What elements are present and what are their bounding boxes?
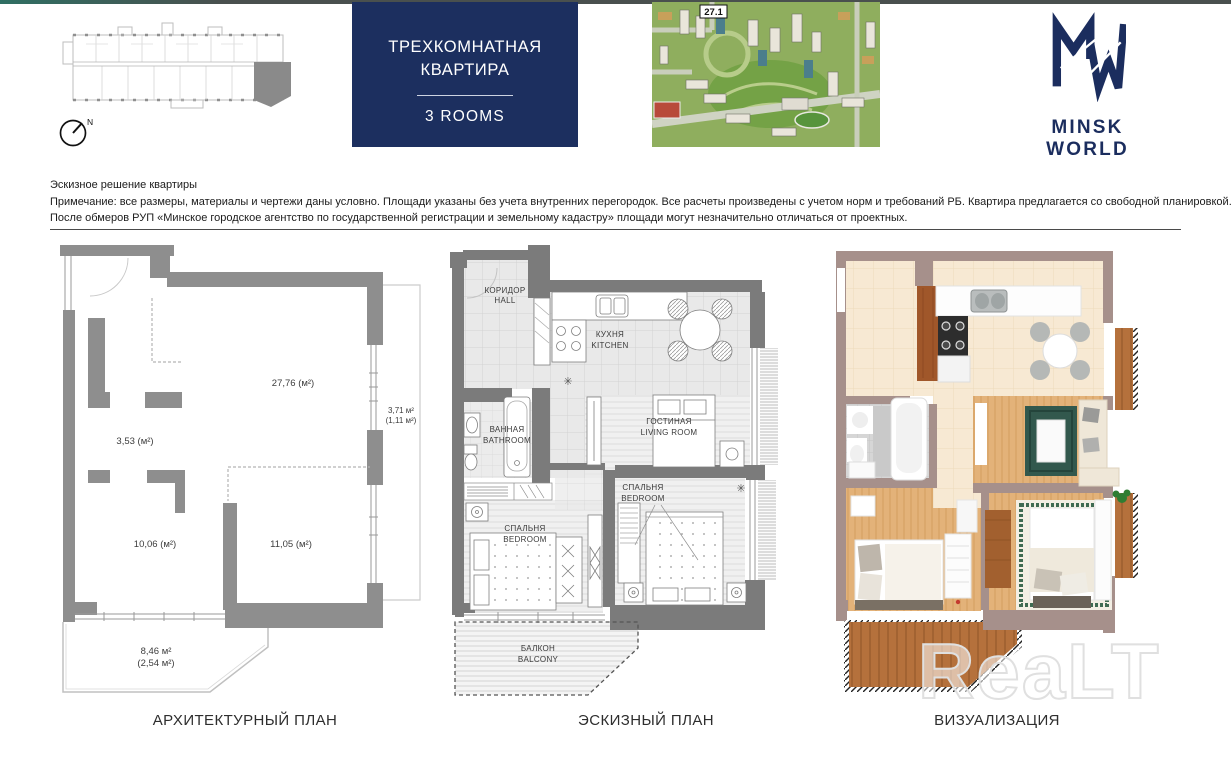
svg-text:KITCHEN: KITCHEN [591,341,628,350]
brand-logo: MINSK WORLD [1010,10,1165,161]
svg-text:BALCONY: BALCONY [518,655,559,664]
brand-name: MINSK WORLD [1010,117,1165,161]
flyer-page: N ТРЕХКОМНАТНАЯ КВАРТИРА 3 ROOMS [0,0,1231,763]
title-card: ТРЕХКОМНАТНАЯ КВАРТИРА 3 ROOMS [352,2,578,147]
area-bedroom-left: 10,06 (м²) [134,539,176,550]
svg-text:BEDROOM: BEDROOM [503,535,546,544]
aerial-photo: 27.1 [652,2,880,147]
svg-text:HALL: HALL [494,296,515,305]
caption-visualization: ВИЗУАЛИЗАЦИЯ [934,712,1060,729]
plant-icon: ✳ [736,483,745,495]
svg-text:ВАННАЯ: ВАННАЯ [490,425,525,434]
top-strip [0,0,1231,4]
svg-text:БАЛКОН: БАЛКОН [521,644,555,653]
compass-north-label: N [87,117,93,127]
viz-loggia-strips [1115,328,1138,578]
unit-type-ru: ТРЕХКОМНАТНАЯ [352,36,578,59]
loggia-outline [383,285,420,600]
disclaimer-block: Эскизное решение квартиры Примечание: вс… [50,177,1230,227]
caption-architectural: АРХИТЕКТУРНЫЙ ПЛАН [153,712,337,729]
unit-type-en: 3 ROOMS [352,108,578,126]
viz-bathroom [847,398,927,480]
compass-icon: N [56,112,100,152]
balcony-outline [63,622,268,692]
sketch-plan: ✳ [448,245,783,700]
title-divider [417,95,513,96]
area-bedroom-right: 11,05 (м²) [270,539,312,550]
fridge-snowflake-icon: ✳ [563,376,572,388]
svg-text:BEDROOM: BEDROOM [621,494,664,503]
visualization-plan [833,248,1163,698]
svg-text:BATHROOM: BATHROOM [483,436,531,445]
disclaimer-line-1: Эскизное решение квартиры [50,177,1230,194]
svg-text:(2,54 м²): (2,54 м²) [137,658,174,669]
wardrobe-strip [464,483,552,500]
door-arc [90,258,128,296]
block-number-badge: 27.1 [700,5,727,18]
disclaimer-line-3: После обмеров РУП «Минское городское аге… [50,210,1230,227]
disclaimer-line-2: Примечание: все размеры, материалы и чер… [50,194,1230,211]
svg-text:LIVING ROOM: LIVING ROOM [641,428,698,437]
building-key-plan [58,10,333,110]
svg-text:27.1: 27.1 [704,7,723,18]
svg-text:(1,11 м²): (1,11 м²) [386,416,417,425]
svg-text:СПАЛЬНЯ: СПАЛЬНЯ [504,524,545,533]
arch-walls [60,245,383,628]
arch-windows [65,256,378,621]
svg-text:КОРИДОР: КОРИДОР [485,286,526,295]
area-living: 27,76 (м²) [272,378,314,389]
svg-text:ГОСТИНАЯ: ГОСТИНАЯ [646,417,692,426]
horizontal-divider [50,229,1181,230]
highlighted-unit [254,62,291,107]
caption-sketch: ЭСКИЗНЫЙ ПЛАН [578,712,714,729]
svg-text:СПАЛЬНЯ: СПАЛЬНЯ [622,483,663,492]
architectural-plan: 27,76 (м²) 3,53 (м²) 10,06 (м²) 11,05 (м… [58,245,423,700]
mw-monogram-icon [1050,10,1126,102]
area-bathroom: 3,53 (м²) [116,436,153,447]
area-balcony: 8,46 м² [141,646,172,657]
svg-text:КУХНЯ: КУХНЯ [596,330,624,339]
area-loggia: 3,71 м² [388,406,414,415]
